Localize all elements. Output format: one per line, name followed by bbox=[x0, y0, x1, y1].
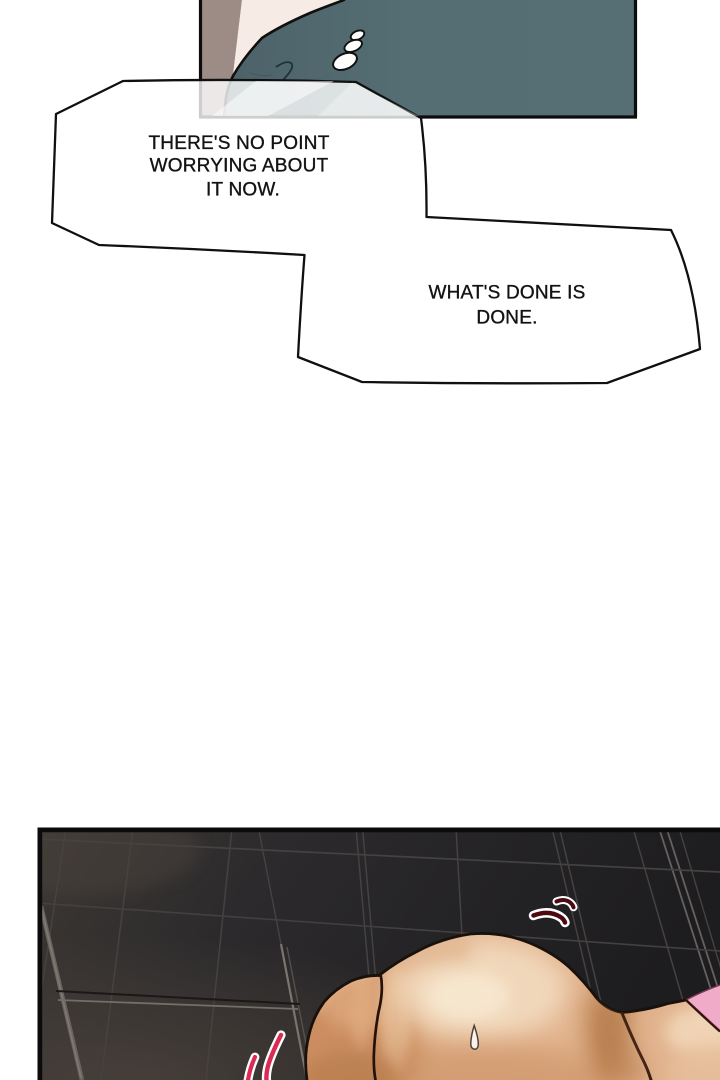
svg-text:DONE.: DONE. bbox=[476, 308, 537, 329]
svg-text:THERE'S NO POINT: THERE'S NO POINT bbox=[148, 133, 329, 154]
svg-text:WORRYING ABOUT: WORRYING ABOUT bbox=[150, 156, 329, 177]
svg-text:WHAT'S DONE IS: WHAT'S DONE IS bbox=[428, 283, 585, 304]
svg-text:IT NOW.: IT NOW. bbox=[206, 180, 280, 201]
